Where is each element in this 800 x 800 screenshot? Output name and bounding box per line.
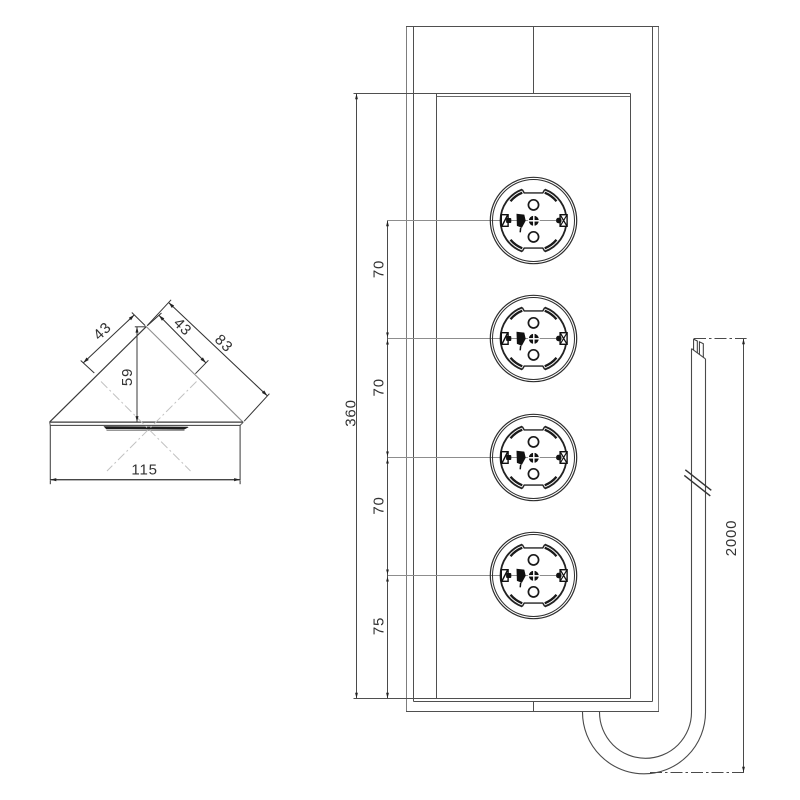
svg-text:83: 83	[211, 331, 236, 356]
svg-text:70: 70	[371, 260, 388, 278]
svg-text:360: 360	[343, 399, 360, 426]
svg-text:2000: 2000	[723, 520, 740, 557]
svg-text:70: 70	[371, 378, 388, 396]
svg-text:59: 59	[119, 368, 136, 386]
svg-text:70: 70	[371, 496, 388, 514]
svg-text:43: 43	[170, 315, 195, 340]
svg-text:115: 115	[131, 462, 157, 479]
svg-text:43: 43	[90, 319, 115, 344]
svg-text:75: 75	[371, 617, 388, 635]
